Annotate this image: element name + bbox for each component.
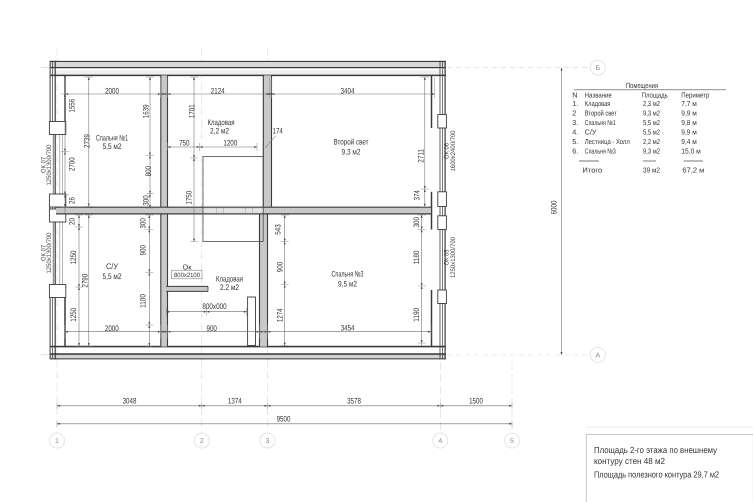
svg-text:9,9 м: 9,9 м — [681, 127, 697, 136]
svg-text:6.: 6. — [572, 146, 578, 155]
svg-text:300: 300 — [412, 217, 421, 228]
svg-text:900: 900 — [139, 245, 148, 256]
svg-text:1250: 1250 — [69, 307, 78, 321]
svg-text:900: 900 — [276, 261, 285, 272]
svg-text:5,5 м2: 5,5 м2 — [103, 272, 122, 281]
svg-text:1250х1300/700: 1250х1300/700 — [46, 144, 53, 185]
svg-text:5.: 5. — [572, 137, 578, 146]
svg-text:1180: 1180 — [412, 250, 421, 264]
svg-text:9,8 м: 9,8 м — [681, 118, 697, 127]
svg-text:6000: 6000 — [550, 200, 559, 214]
svg-text:1274: 1274 — [276, 308, 285, 322]
svg-text:С/У: С/У — [106, 262, 119, 271]
svg-text:1.: 1. — [572, 99, 578, 108]
svg-text:контуру стен 48 м2: контуру стен 48 м2 — [594, 456, 665, 466]
svg-text:1500: 1500 — [469, 396, 483, 405]
svg-text:1639: 1639 — [141, 104, 150, 118]
svg-text:1701: 1701 — [187, 104, 196, 118]
svg-text:1556: 1556 — [68, 98, 77, 112]
svg-text:Лестница - Холл: Лестница - Холл — [585, 137, 630, 146]
svg-text:5,5 м2: 5,5 м2 — [643, 127, 660, 136]
svg-text:2.2 м2: 2.2 м2 — [220, 283, 239, 292]
svg-text:2124: 2124 — [211, 87, 225, 96]
svg-text:374: 374 — [413, 190, 422, 201]
svg-text:9500: 9500 — [277, 414, 291, 423]
svg-text:Второй свет: Второй свет — [585, 108, 618, 117]
svg-text:5: 5 — [510, 438, 514, 445]
svg-text:26: 26 — [68, 197, 77, 204]
svg-text:9,5 м2: 9,5 м2 — [338, 279, 357, 288]
svg-text:5,5 м2: 5,5 м2 — [643, 118, 660, 127]
svg-text:1200: 1200 — [223, 138, 237, 147]
svg-text:750: 750 — [179, 138, 190, 147]
svg-text:2,2 м2: 2,2 м2 — [643, 137, 660, 146]
svg-text:15,0 м: 15,0 м — [681, 146, 701, 155]
svg-text:9,9 м: 9,9 м — [681, 108, 697, 117]
svg-text:2: 2 — [572, 108, 576, 117]
svg-text:4.: 4. — [572, 127, 578, 136]
svg-text:3454: 3454 — [341, 323, 355, 332]
svg-text:3578: 3578 — [347, 396, 361, 405]
svg-text:9,3 м2: 9,3 м2 — [342, 147, 361, 156]
svg-text:3: 3 — [266, 438, 270, 445]
svg-text:Б: Б — [596, 65, 601, 72]
svg-text:1250: 1250 — [69, 250, 78, 264]
svg-text:900: 900 — [207, 324, 218, 333]
svg-text:2: 2 — [200, 438, 204, 445]
svg-text:1750: 1750 — [185, 190, 194, 204]
svg-text:2000: 2000 — [105, 86, 119, 95]
svg-text:Итого: Итого — [582, 165, 602, 174]
svg-text:800х000: 800х000 — [202, 302, 227, 311]
svg-text:2711: 2711 — [416, 148, 425, 162]
svg-text:3.: 3. — [572, 118, 578, 127]
svg-text:174: 174 — [273, 127, 284, 136]
svg-text:Спальня №1: Спальня №1 — [585, 118, 616, 127]
svg-text:Помещения: Помещения — [626, 81, 658, 90]
svg-text:1600х2400/700: 1600х2400/700 — [450, 130, 457, 171]
svg-text:39 м2: 39 м2 — [643, 165, 660, 174]
svg-text:А: А — [595, 352, 600, 359]
svg-text:Кладовая: Кладовая — [585, 99, 611, 108]
svg-text:С/У: С/У — [585, 127, 597, 136]
svg-text:67,2 м: 67,2 м — [682, 165, 704, 174]
svg-text:1: 1 — [55, 438, 59, 445]
svg-text:800х2100: 800х2100 — [174, 272, 201, 279]
svg-text:2700: 2700 — [68, 157, 77, 171]
svg-text:1250х1300/700: 1250х1300/700 — [46, 232, 53, 273]
svg-text:9,4 м: 9,4 м — [681, 137, 697, 146]
svg-text:300: 300 — [141, 195, 150, 206]
svg-text:543: 543 — [274, 224, 283, 235]
svg-text:2739: 2739 — [82, 134, 91, 148]
svg-text:7,7 м: 7,7 м — [681, 99, 697, 108]
svg-text:3404: 3404 — [341, 86, 355, 95]
svg-text:4: 4 — [438, 438, 442, 445]
svg-text:3048: 3048 — [123, 396, 137, 405]
svg-text:2790: 2790 — [81, 273, 90, 287]
svg-text:2000: 2000 — [105, 324, 119, 333]
svg-text:20: 20 — [67, 218, 76, 225]
svg-text:1190: 1190 — [412, 307, 421, 321]
svg-text:Спальня №3: Спальня №3 — [332, 269, 364, 278]
svg-text:1374: 1374 — [228, 396, 242, 405]
svg-text:9,3 м2: 9,3 м2 — [643, 108, 660, 117]
svg-text:Площадь 2-го этажа по внешнему: Площадь 2-го этажа по внешнему — [594, 445, 718, 455]
svg-text:1100: 1100 — [139, 294, 148, 308]
svg-text:300: 300 — [139, 218, 148, 229]
svg-text:Площадь полезного контура 29,7: Площадь полезного контура 29,7 м2 — [594, 469, 719, 479]
svg-text:1250х1300/700: 1250х1300/700 — [450, 237, 457, 278]
svg-text:5,5 м2: 5,5 м2 — [103, 142, 122, 151]
svg-text:800: 800 — [144, 166, 153, 177]
svg-text:2,2 м2: 2,2 м2 — [210, 126, 229, 135]
svg-text:Спальня №3: Спальня №3 — [585, 146, 616, 155]
svg-text:9,3 м2: 9,3 м2 — [643, 146, 660, 155]
svg-text:Второй свет: Второй свет — [334, 137, 369, 146]
svg-text:2,3 м2: 2,3 м2 — [643, 99, 660, 108]
